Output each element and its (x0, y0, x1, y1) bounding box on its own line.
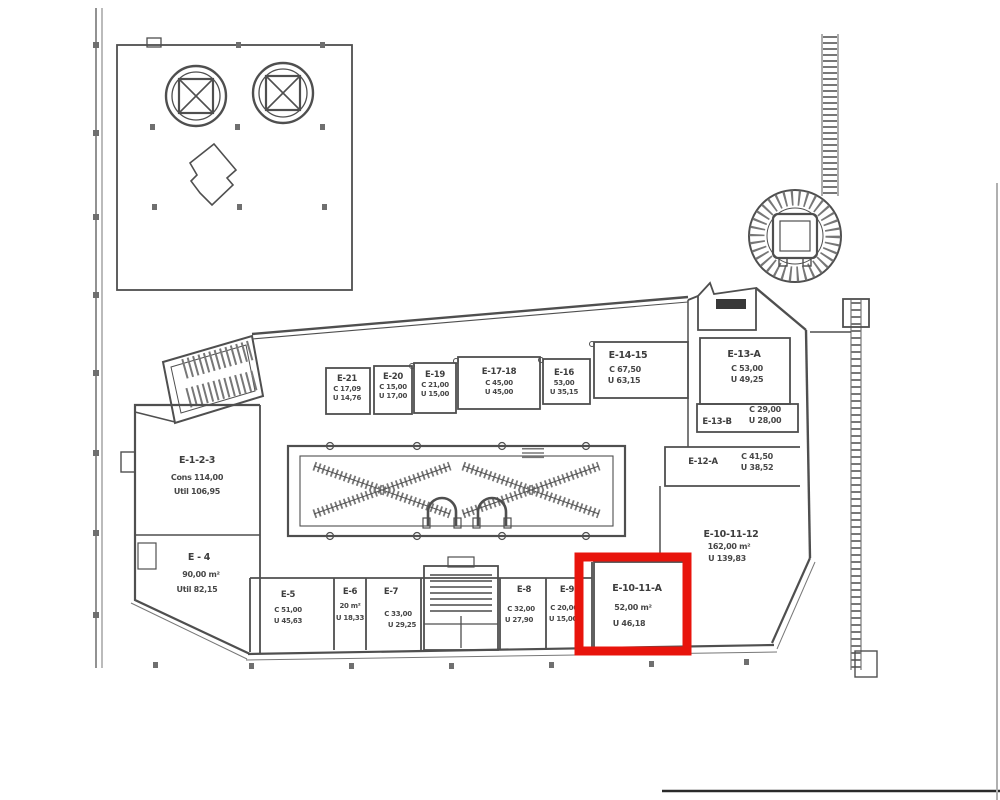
stairs-upper-left-icon (135, 336, 263, 423)
unit-name-e19: E-19 (425, 370, 445, 380)
floorplan-page: E-21 C 17,09 U 14,76 E-20 C 15,00 U 17,0… (0, 0, 1000, 800)
unit-util-e1011a: U 46,18 (613, 619, 646, 628)
spiral-stair-icon (749, 190, 841, 282)
bottom-column-dots (153, 659, 749, 669)
unit-name-e21: E-21 (337, 374, 357, 384)
unit-name-e1011a: E-10-11-A (612, 583, 662, 594)
unit-name-e16: E-16 (554, 368, 574, 378)
unit-util-e21: U 14,76 (333, 394, 362, 402)
left-boundary-wall (93, 8, 102, 668)
unit-util-e101112: U 139,83 (708, 554, 746, 563)
unit-util-e19: U 15,00 (421, 390, 450, 398)
skylight-icon (166, 66, 226, 126)
unit-util-e13a: U 49,25 (731, 375, 764, 384)
page-edges (662, 183, 1000, 800)
unit-area-e1011a: 52,00 m² (614, 603, 652, 612)
unit-name-e13b: E-13-B (702, 417, 731, 427)
unit-util-e16: U 35,15 (550, 388, 579, 396)
unit-name-e12a: E-12-A (688, 457, 718, 467)
unit-util-e12a: U 38,52 (741, 463, 774, 472)
unit-name-e7: E-7 (384, 587, 399, 597)
unit-util-e7: U 29,25 (388, 621, 417, 629)
unit-util-e6: U 18,33 (336, 614, 365, 622)
right-units-outline (660, 283, 810, 560)
unit-util-e20: U 17,00 (379, 392, 408, 400)
unit-area-e101112: 162,00 m² (708, 542, 752, 551)
unit-area-e16: 53,00 (554, 379, 575, 387)
unit-util-e123: Util 106,95 (174, 487, 221, 496)
unit-util-e1415: U 63,15 (608, 376, 641, 385)
unit-area-e4: 90,00 m² (182, 570, 220, 579)
hatched-wall-top-right (822, 34, 838, 196)
skylight-icon (253, 63, 313, 123)
atrium-escalators-icon (288, 443, 625, 540)
unit-area-e9: C 20,00 (550, 604, 578, 612)
unit-area-e6: 20 m² (339, 602, 360, 610)
unit-area-e13b: C 29,00 (749, 405, 782, 414)
unit-util-e13b: U 28,00 (749, 416, 782, 425)
small-dark-label-block (716, 299, 746, 309)
unit-name-e123: E-1-2-3 (179, 455, 215, 466)
unit-area-e12a: C 41,50 (741, 452, 774, 461)
unit-name-e9: E-9 (560, 585, 575, 595)
unit-area-e21: C 17,09 (333, 385, 361, 393)
hatched-wall-right (810, 299, 877, 677)
terrace-feature-shape (190, 144, 236, 205)
unit-area-e20: C 15,00 (379, 383, 407, 391)
unit-util-e1718: U 45,00 (485, 388, 514, 396)
unit-util-e8: U 27,90 (505, 616, 534, 624)
terrace (117, 38, 352, 290)
unit-util-e5: U 45,63 (274, 617, 303, 625)
unit-name-e6: E-6 (343, 587, 358, 597)
unit-name-e5: E-5 (281, 590, 296, 600)
unit-area-e123: Cons 114,00 (171, 473, 224, 482)
promenade-edge (252, 296, 698, 339)
unit-util-e9: U 15,00 (549, 615, 578, 623)
unit-area-e1415: C 67,50 (609, 365, 642, 374)
unit-area-e19: C 21,00 (421, 381, 449, 389)
unit-name-e1718: E-17-18 (482, 367, 517, 377)
left-rooms-outline (121, 405, 260, 659)
unit-area-e1718: C 45,00 (485, 379, 513, 387)
unit-name-e4: E - 4 (188, 552, 211, 563)
unit-name-e8: E-8 (517, 585, 532, 595)
unit-name-e101112: E-10-11-12 (704, 529, 759, 540)
unit-area-e8: C 32,00 (507, 605, 535, 613)
unit-area-e5: C 51,00 (274, 606, 302, 614)
unit-name-e1415: E-14-15 (609, 350, 648, 361)
stairs-bottom-icon (424, 557, 498, 650)
unit-area-e13a: C 53,00 (731, 364, 764, 373)
floorplan-drawing: E-21 C 17,09 U 14,76 E-20 C 15,00 U 17,0… (0, 0, 1000, 800)
unit-name-e13a: E-13-A (727, 349, 761, 360)
unit-util-e4: Util 82,15 (177, 585, 219, 594)
unit-area-e7: C 33,00 (384, 610, 412, 618)
unit-name-e20: E-20 (383, 372, 403, 382)
